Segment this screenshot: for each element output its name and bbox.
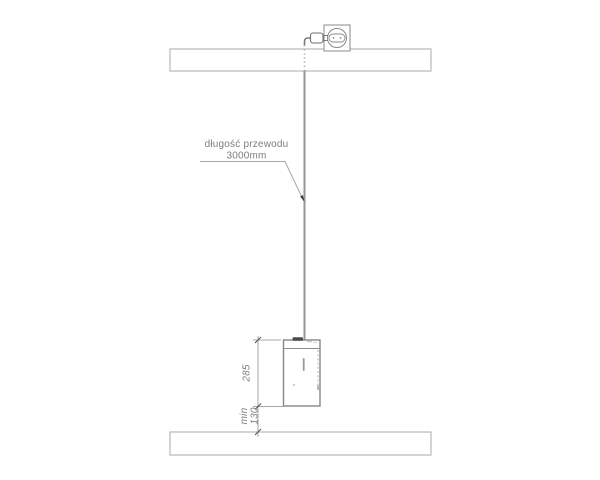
lamp-cable-connector [293, 337, 304, 340]
cable-length-label-line1: długość przewodu [205, 139, 289, 150]
lamp-dot-detail [293, 384, 295, 386]
lamp-slot-detail [303, 358, 305, 371]
power-socket-icon [324, 25, 350, 51]
dim-floor-clearance-label: 130 [250, 407, 261, 425]
lamp-body [284, 340, 321, 406]
ceiling-slab [170, 49, 431, 71]
pendant-lamp [284, 337, 321, 406]
cable-length-label: długość przewodu 3000mm [205, 139, 289, 162]
leader-line [200, 162, 304, 201]
cable-bend-segment [305, 38, 311, 45]
lamp-top-marking-2 [313, 342, 317, 343]
lamp-top-marking [307, 341, 312, 342]
dimension-annotations: 285 min 130 [239, 336, 283, 437]
dim-lamp-height-label: 285 [242, 364, 253, 383]
pendant-lamp-installation-diagram: długość przewodu 3000mm [0, 0, 600, 480]
dim-min-label: min [239, 407, 250, 424]
technical-drawing: długość przewodu 3000mm [0, 0, 600, 480]
floor-slab [170, 432, 431, 455]
cable-length-label-line2: 3000mm [226, 151, 266, 162]
